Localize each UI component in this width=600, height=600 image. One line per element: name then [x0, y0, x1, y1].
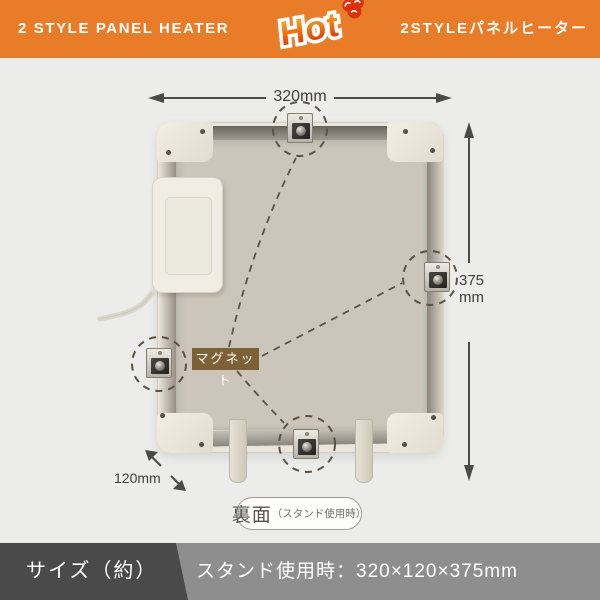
depth-arrowhead-lower: [173, 480, 186, 491]
frame-screw: [430, 148, 435, 153]
stand-foot-left: [229, 419, 247, 483]
height-dimension-unit: mm: [459, 290, 484, 307]
header-bar: 2 STYLE PANEL HEATER Hot Hot 2STYLEパネルヒー…: [0, 0, 600, 58]
power-cord-shade: [100, 293, 152, 319]
frame-screw: [431, 415, 436, 420]
frame-screw: [402, 442, 407, 447]
depth-arrow-line-upper: [150, 455, 161, 466]
rear-view-caption-main: 裏面: [232, 500, 272, 527]
height-dimension-label: 375 mm: [459, 273, 484, 306]
header-title-jp: 2STYLEパネルヒーター: [400, 0, 588, 58]
junction-box: [152, 177, 223, 293]
depth-dimension-label: 120mm: [114, 470, 161, 486]
hot-logo-text: Hot: [278, 5, 341, 54]
power-cord: [100, 293, 152, 319]
height-dimension-value: 375: [459, 273, 484, 290]
height-arrowhead-top: [464, 122, 474, 138]
depth-arrow-line-lower: [171, 476, 181, 486]
flame-mascot-icon: [339, 0, 369, 23]
hot-brand-logo: Hot Hot: [270, 0, 378, 64]
footer-size-bar: サイズ（約） スタンド使用時：320×120×375mm: [0, 543, 600, 600]
stand-foot-right: [355, 419, 373, 483]
magnet-label: マグネット: [192, 348, 259, 370]
width-arrowhead-left: [148, 93, 164, 103]
magnet-screw-head: [433, 275, 443, 285]
magnet-clip-top: [287, 113, 313, 143]
frame-corner-top-left: [157, 122, 213, 162]
magnet-clip-bottom: [293, 429, 319, 459]
width-arrowhead-right: [436, 93, 452, 103]
magnet-clip-right: [424, 262, 450, 292]
header-title-en: 2 STYLE PANEL HEATER: [18, 0, 229, 58]
magnet-screw: [436, 265, 440, 269]
magnet-screw: [299, 116, 303, 120]
magnet-screw: [305, 432, 309, 436]
frame-screw: [199, 442, 204, 447]
magnet-screw-head: [155, 361, 165, 371]
width-dimension-label: 320mm: [268, 88, 332, 106]
size-value: スタンド使用時：320×120×375mm: [196, 543, 518, 600]
magnet-screw-head: [296, 126, 306, 136]
size-label: サイズ（約）: [26, 543, 157, 600]
magnet-screw: [158, 351, 162, 355]
depth-arrowhead-upper: [145, 450, 158, 461]
rear-view-caption-sub: （スタンド使用時）: [272, 506, 367, 521]
frame-screw: [200, 129, 205, 134]
product-infographic: 2 STYLE PANEL HEATER Hot Hot 2STYLEパネルヒー…: [0, 0, 600, 600]
frame-screw: [166, 150, 171, 155]
frame-corner-bottom-left: [157, 413, 213, 453]
rear-view-caption: 裏面 （スタンド使用時）: [236, 497, 362, 530]
frame-corner-top-right: [387, 122, 443, 162]
junction-box-lid: [165, 197, 212, 275]
magnet-screw-head: [302, 442, 312, 452]
height-arrowhead-bottom: [464, 465, 474, 481]
frame-screw: [160, 413, 165, 418]
magnet-clip-left: [146, 348, 172, 378]
frame-screw: [403, 129, 408, 134]
